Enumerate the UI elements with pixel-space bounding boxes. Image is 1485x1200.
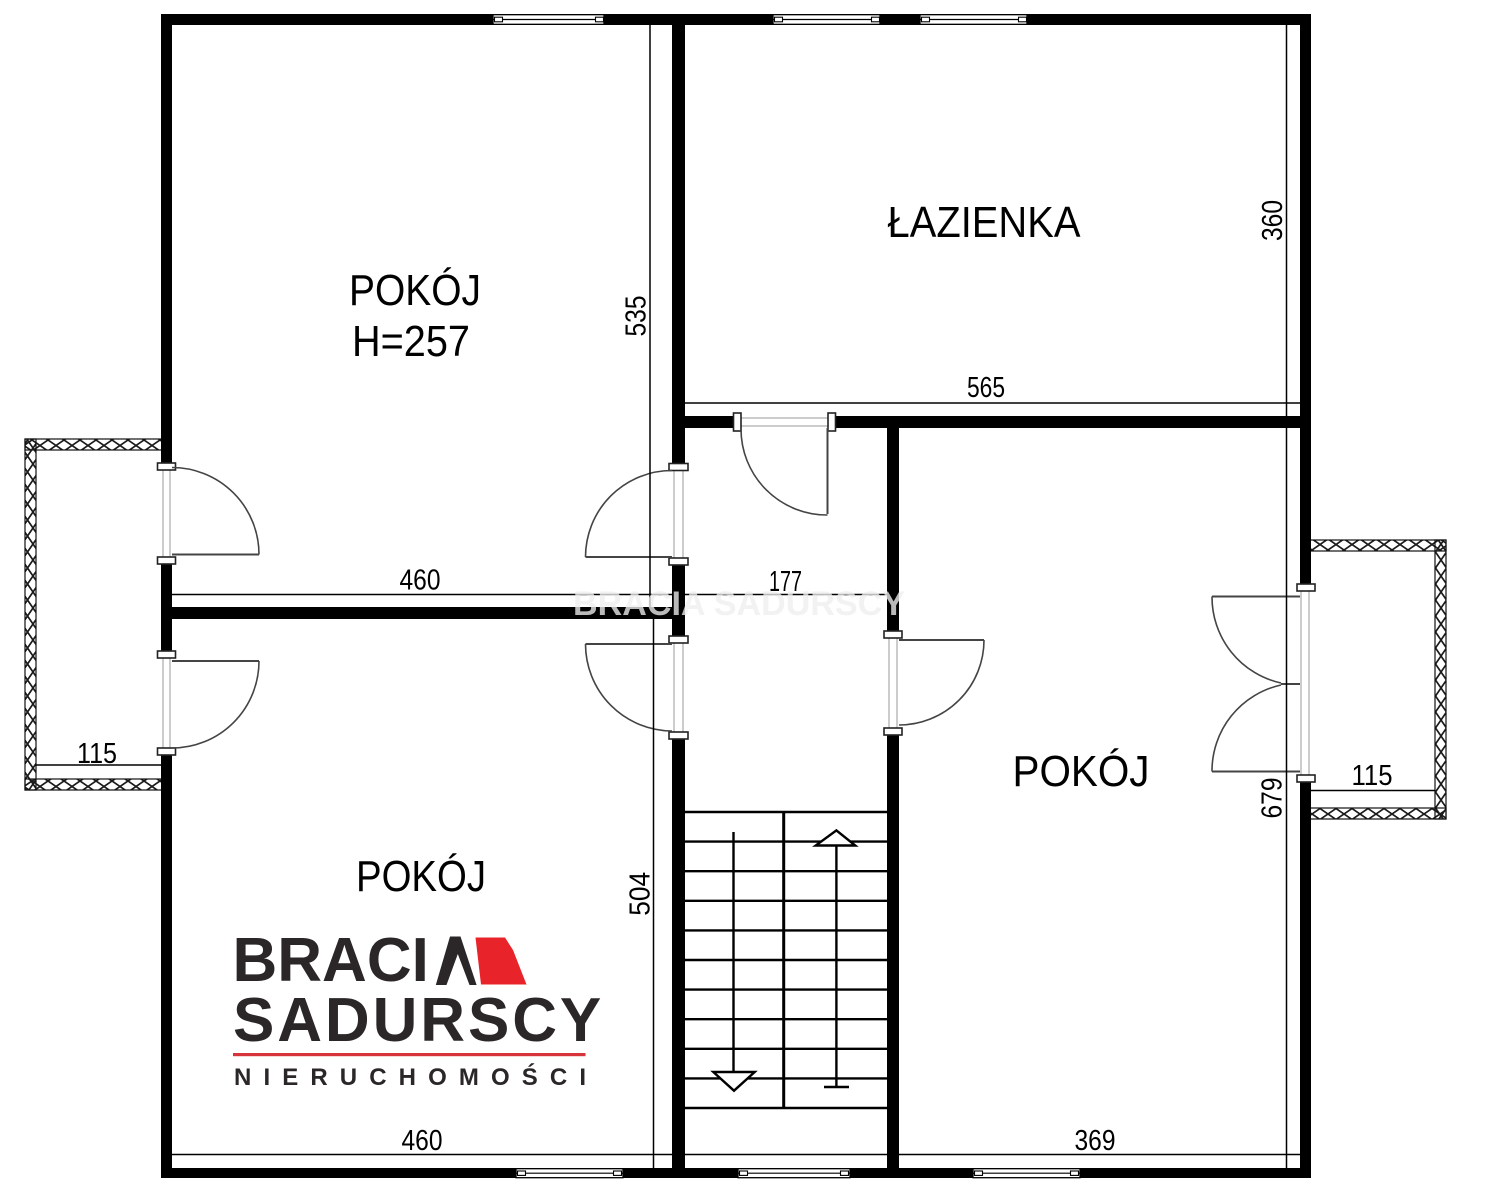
svg-text:SADURSCY: SADURSCY bbox=[233, 986, 604, 1055]
svg-text:535: 535 bbox=[621, 296, 653, 337]
svg-text:BRACI: BRACI bbox=[233, 926, 429, 995]
svg-text:NIERUCHOMOŚCI: NIERUCHOMOŚCI bbox=[234, 1063, 586, 1091]
svg-text:H=257: H=257 bbox=[352, 317, 470, 366]
svg-text:565: 565 bbox=[967, 372, 1005, 404]
svg-text:679: 679 bbox=[1257, 778, 1289, 819]
svg-text:504: 504 bbox=[625, 872, 657, 916]
svg-text:BRACIA SADURSCY: BRACIA SADURSCY bbox=[573, 585, 905, 623]
svg-text:360: 360 bbox=[1257, 200, 1289, 241]
svg-text:ŁAZIENKA: ŁAZIENKA bbox=[888, 198, 1082, 247]
svg-text:460: 460 bbox=[400, 565, 441, 597]
svg-text:POKÓJ: POKÓJ bbox=[1013, 747, 1150, 796]
svg-text:POKÓJ: POKÓJ bbox=[349, 266, 481, 315]
svg-text:460: 460 bbox=[402, 1125, 443, 1157]
svg-text:115: 115 bbox=[1352, 760, 1393, 792]
svg-text:POKÓJ: POKÓJ bbox=[356, 852, 486, 901]
svg-text:369: 369 bbox=[1075, 1125, 1116, 1157]
svg-text:115: 115 bbox=[77, 738, 117, 770]
